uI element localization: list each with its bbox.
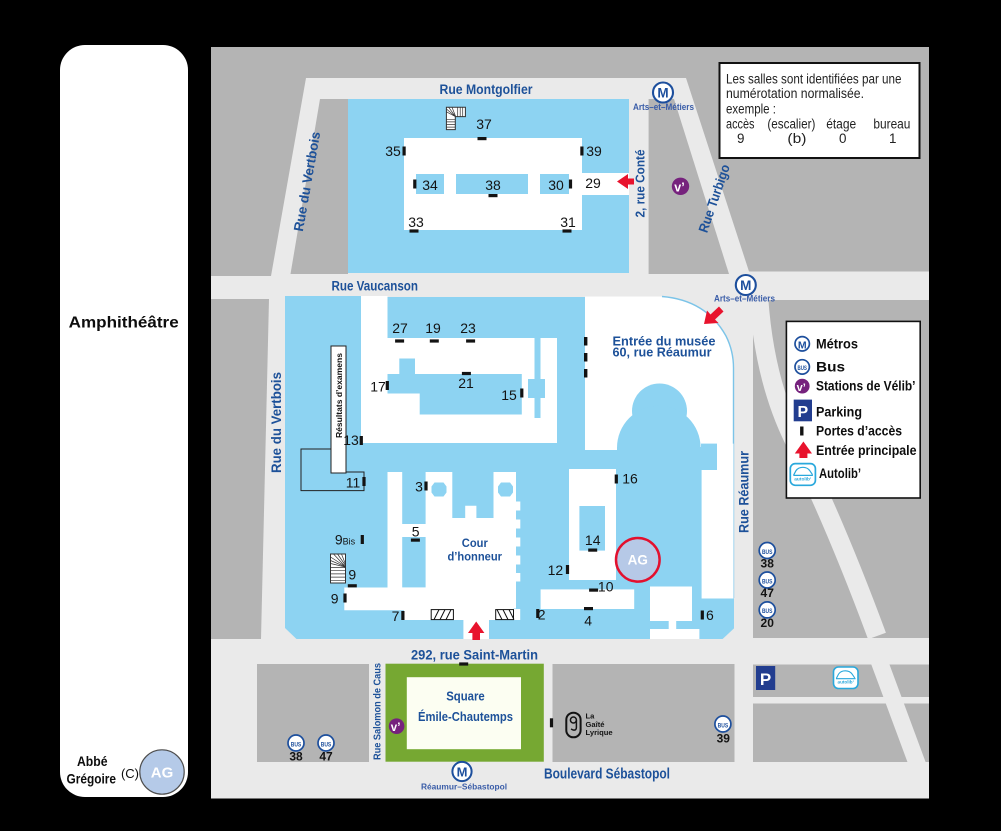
svg-text:Lyrique: Lyrique (586, 728, 613, 737)
svg-text:33: 33 (408, 214, 424, 230)
svg-text:39: 39 (717, 732, 731, 746)
svg-text:Réaumur–Sébastopol: Réaumur–Sébastopol (421, 782, 507, 792)
svg-text:AG: AG (151, 765, 174, 782)
svg-text:Arts–et–Métiers: Arts–et–Métiers (714, 294, 775, 304)
svg-text:AG: AG (628, 553, 648, 568)
svg-text:Grégoire: Grégoire (67, 771, 117, 787)
svg-text:Bus: Bus (816, 360, 845, 375)
svg-text:11: 11 (346, 475, 361, 491)
svg-text:2: 2 (538, 607, 546, 623)
svg-text:BUS: BUS (762, 608, 773, 615)
svg-text:(C): (C) (121, 766, 139, 781)
svg-text:1: 1 (889, 131, 896, 146)
svg-text:v’: v’ (674, 180, 684, 194)
svg-text:Les salles sont identifiées pa: Les salles sont identifiées par une (726, 71, 902, 86)
svg-text:Rue Réaumur: Rue Réaumur (737, 450, 752, 533)
svg-text:v’: v’ (797, 382, 806, 394)
svg-text:étage: étage (826, 116, 856, 131)
svg-text:autolib’: autolib’ (838, 680, 854, 685)
svg-text:Abbé: Abbé (77, 753, 108, 769)
svg-text:autolib’: autolib’ (794, 477, 811, 483)
svg-text:(b): (b) (787, 131, 806, 146)
svg-text:Entrée principale: Entrée principale (816, 443, 917, 458)
svg-text:BUS: BUS (797, 366, 807, 372)
svg-text:BUS: BUS (762, 549, 773, 556)
svg-text:39: 39 (586, 143, 602, 159)
svg-text:Arts–et–Métiers: Arts–et–Métiers (633, 102, 694, 112)
svg-text:M: M (740, 278, 751, 293)
svg-text:12: 12 (548, 562, 564, 578)
svg-text:47: 47 (319, 750, 333, 764)
svg-text:2, rue Conté: 2, rue Conté (634, 149, 648, 217)
svg-text:Boulevard Sébastopol: Boulevard Sébastopol (544, 766, 670, 783)
svg-text:10: 10 (598, 579, 614, 595)
svg-text:M: M (798, 339, 807, 351)
svg-text:20: 20 (761, 616, 775, 630)
svg-text:31: 31 (560, 214, 576, 230)
svg-text:21: 21 (458, 375, 474, 391)
svg-text:38: 38 (761, 557, 775, 571)
svg-text:Autolib’: Autolib’ (819, 466, 861, 481)
svg-text:numérotation normalisée.: numérotation normalisée. (726, 86, 864, 101)
svg-text:Stations de Vélib’: Stations de Vélib’ (816, 379, 916, 394)
svg-text:d’honneur: d’honneur (448, 550, 503, 564)
svg-text:Résultats d’examens: Résultats d’examens (334, 353, 344, 438)
svg-text:6: 6 (706, 607, 714, 623)
svg-text:bureau: bureau (873, 116, 910, 131)
svg-text:9: 9 (737, 131, 744, 146)
svg-text:15: 15 (501, 387, 517, 403)
svg-text:16: 16 (622, 471, 638, 487)
svg-text:Cour: Cour (462, 536, 488, 550)
svg-text:Parking: Parking (816, 405, 862, 420)
svg-text:(escalier): (escalier) (767, 116, 815, 131)
svg-text:Rue Montgolfier: Rue Montgolfier (440, 82, 534, 97)
svg-text:27: 27 (392, 320, 408, 336)
svg-text:9: 9 (331, 591, 339, 607)
svg-text:3: 3 (415, 479, 423, 495)
svg-text:Rue Salomon de Caus: Rue Salomon de Caus (372, 663, 384, 760)
svg-text:38: 38 (289, 750, 303, 764)
svg-text:BUS: BUS (762, 578, 773, 585)
svg-text:BUS: BUS (321, 741, 332, 748)
svg-text:v’: v’ (391, 722, 401, 734)
svg-text:exemple :: exemple : (726, 101, 776, 116)
svg-text:292, rue Saint-Martin: 292, rue Saint-Martin (411, 647, 538, 663)
svg-text:Square: Square (446, 689, 485, 704)
svg-text:4: 4 (584, 613, 592, 629)
svg-text:19: 19 (425, 320, 441, 336)
svg-text:14: 14 (585, 532, 601, 548)
svg-text:accès: accès (726, 116, 755, 131)
svg-text:BUS: BUS (718, 722, 729, 729)
svg-text:Amphithéâtre: Amphithéâtre (69, 315, 179, 332)
svg-text:P: P (760, 670, 771, 689)
svg-text:47: 47 (761, 586, 775, 600)
svg-text:Portes d’accès: Portes d’accès (816, 424, 902, 439)
svg-text:9: 9 (348, 567, 356, 583)
svg-text:29: 29 (585, 175, 601, 191)
svg-text:M: M (457, 765, 468, 780)
svg-text:BUS: BUS (291, 741, 302, 748)
svg-text:60, rue Réaumur: 60, rue Réaumur (613, 345, 712, 360)
svg-text:M: M (657, 86, 668, 101)
svg-text:5: 5 (412, 524, 420, 540)
svg-text:17: 17 (370, 379, 386, 395)
svg-text:23: 23 (460, 320, 476, 336)
svg-text:Émile-Chautemps: Émile-Chautemps (418, 709, 513, 724)
svg-text:Métros: Métros (816, 337, 858, 352)
svg-text:34: 34 (422, 177, 438, 193)
svg-text:Rue Vaucanson: Rue Vaucanson (332, 279, 419, 294)
svg-text:38: 38 (485, 177, 501, 193)
svg-text:0: 0 (839, 131, 846, 146)
svg-text:Rue du Vertbois: Rue du Vertbois (269, 372, 284, 473)
svg-text:P: P (797, 404, 808, 421)
svg-text:30: 30 (548, 177, 564, 193)
svg-text:35: 35 (385, 143, 401, 159)
svg-text:13: 13 (343, 432, 359, 448)
svg-text:37: 37 (476, 116, 492, 132)
svg-text:7: 7 (392, 608, 400, 624)
